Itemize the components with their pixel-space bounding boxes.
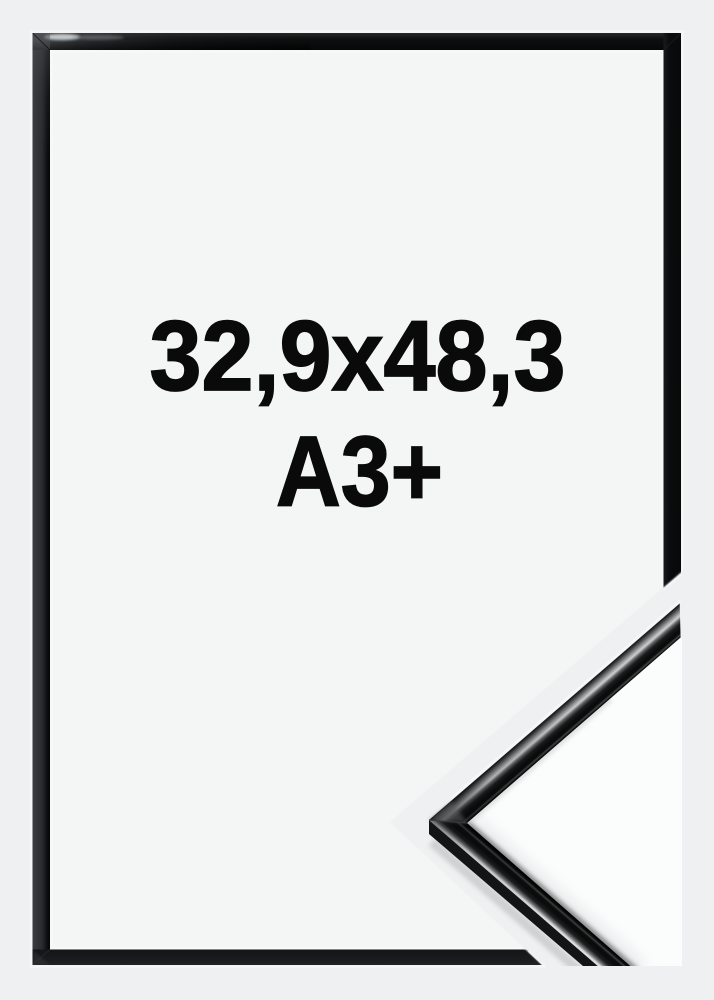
svg-text:A3+: A3+ <box>276 416 443 527</box>
svg-text:32,9x48,3: 32,9x48,3 <box>150 300 566 411</box>
